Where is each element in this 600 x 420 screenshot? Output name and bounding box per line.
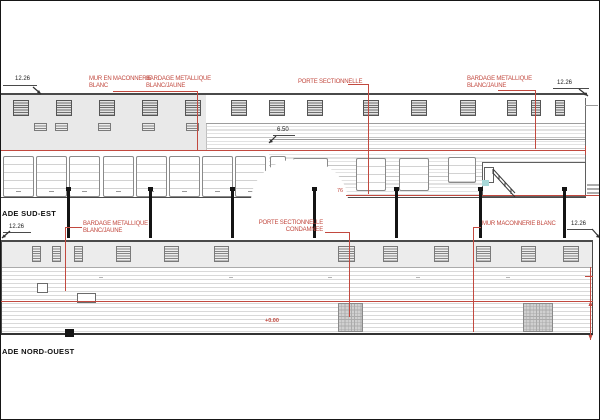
no-condemned-door	[338, 303, 363, 332]
se-vent-louver	[98, 123, 111, 131]
facade-post	[67, 187, 70, 238]
no-attic-strip	[1, 242, 593, 268]
leader-mur-no-v	[473, 227, 474, 332]
no-vent-louver	[164, 246, 179, 262]
no-joint-tick	[229, 277, 233, 278]
leader-condamnee-v	[349, 232, 350, 317]
se-window-louver	[142, 100, 158, 116]
leader-mur-se-v	[197, 91, 198, 150]
label-line: CONDAMNEE	[253, 227, 323, 234]
se-window-louver	[460, 100, 476, 116]
leader-mur-no-h	[473, 227, 481, 228]
label-bardage-se-right: BARDAGE METALLIQUE BLANC/JAUNE	[467, 76, 532, 89]
label-porte-sectionnelle: PORTE SECTIONNELLE	[298, 79, 362, 86]
facade-post	[563, 187, 566, 238]
se-annex	[585, 98, 600, 197]
label-bardage-se-left: BARDAGE METALLIQUE BLANC/JAUNE	[146, 76, 211, 89]
se-window-louver	[185, 100, 201, 116]
dim-no-height-left-line	[3, 232, 31, 233]
dim-no-height-right-line	[567, 229, 593, 230]
facade-title-sud-est: ADE SUD-EST	[2, 209, 56, 218]
leader-condamnee-h	[325, 232, 349, 233]
se-red-dim-tick	[585, 146, 586, 155]
no-black-marker	[65, 329, 74, 337]
se-window-louver	[363, 100, 379, 116]
facade-post	[395, 187, 398, 238]
se-window-louver	[307, 100, 323, 116]
se-vent-louver	[142, 123, 155, 131]
no-level-red-line	[1, 301, 593, 302]
label-mur-maconnerie-no: MUR MACONNERIE BLANC	[482, 221, 556, 228]
label-line: BLANC/JAUNE	[467, 83, 532, 90]
leader-porte-se-v	[368, 84, 369, 194]
no-vent-louver	[32, 246, 41, 262]
no-joint-tick	[328, 277, 332, 278]
no-level-text: +0.00	[265, 318, 279, 324]
label-line: PORTE SECTIONNELLE	[253, 220, 323, 227]
se-window-louver	[555, 100, 565, 116]
se-office-teal-panel	[482, 180, 489, 186]
se-door-handle	[116, 191, 121, 192]
dim-se-height-right: 12.26	[557, 80, 572, 86]
leader-bardage-no-v	[65, 227, 66, 291]
label-line: MUR MACONNERIE BLANC	[482, 221, 556, 228]
se-window-louver	[269, 100, 285, 116]
leader-bardage-se-h	[498, 90, 535, 91]
leader-bardage-no-h	[65, 227, 82, 228]
se-door-handle	[182, 191, 187, 192]
label-line: MUR EN MACONNERIE	[89, 76, 152, 83]
no-vent-louver	[338, 246, 355, 262]
facade-post-head	[562, 187, 568, 191]
facade-post-head	[230, 187, 236, 191]
se-door-handle	[215, 191, 220, 192]
dim-no-height-right: 12.26	[571, 221, 586, 227]
label-line: BLANC/JAUNE	[83, 228, 148, 235]
label-line: BLANC/JAUNE	[146, 83, 211, 90]
se-door-handle	[16, 191, 21, 192]
label-line: BARDAGE METALLIQUE	[467, 76, 532, 83]
no-right-edge	[592, 241, 593, 335]
se-window-louver	[531, 100, 541, 116]
no-small-window-1	[37, 283, 48, 293]
no-vent-louver	[74, 246, 83, 262]
no-ground-line	[1, 333, 593, 335]
se-window-louver	[411, 100, 427, 116]
se-eave-line	[269, 139, 586, 140]
se-sectional-door	[399, 158, 429, 191]
facade-title-nord-ouest: ADE NORD-OUEST	[2, 347, 75, 356]
label-line: BARDAGE METALLIQUE	[83, 221, 148, 228]
label-line: BLANC	[89, 83, 152, 90]
facade-post-head	[478, 187, 484, 191]
se-vent-louver	[34, 123, 47, 131]
label-mur-maconnerie-se: MUR EN MACONNERIE BLANC	[89, 76, 152, 89]
facade-post	[479, 187, 482, 238]
dim-se-eave: 6.50	[277, 127, 289, 133]
no-right-dim-tick	[585, 276, 593, 277]
no-vent-louver	[521, 246, 536, 262]
no-right-dim-line	[590, 267, 591, 340]
se-length-dim: 76	[337, 188, 343, 194]
se-vent-louver	[55, 123, 68, 131]
se-window-louver	[13, 100, 29, 116]
no-vent-louver	[214, 246, 229, 262]
se-sectional-door	[356, 158, 386, 191]
se-door-handle	[49, 191, 54, 192]
dim-se-height-right-line	[553, 88, 589, 89]
no-joint-tick	[506, 277, 510, 278]
se-red-dim-line	[1, 150, 586, 151]
leader-mur-se-h	[113, 91, 197, 92]
se-upper-wall	[206, 95, 586, 124]
facade-post-head	[148, 187, 154, 191]
se-ground-red-line	[346, 195, 600, 196]
dim-no-height-left: 12.26	[9, 224, 24, 230]
label-line: BARDAGE METALLIQUE	[146, 76, 211, 83]
label-porte-condamnee: PORTE SECTIONNELLE CONDAMNEE	[253, 220, 323, 233]
leader-bardage-se-v	[535, 90, 536, 149]
no-joint-tick	[99, 277, 103, 278]
label-bardage-no: BARDAGE METALLIQUE BLANC/JAUNE	[83, 221, 148, 234]
no-condemned-door	[523, 303, 553, 332]
se-cladding-upper	[206, 123, 586, 150]
no-joint-tick	[416, 277, 420, 278]
se-window-louver	[507, 100, 517, 116]
facade-post-head	[312, 187, 318, 191]
se-window-louver	[56, 100, 72, 116]
no-vent-louver	[476, 246, 491, 262]
no-left-edge	[1, 241, 2, 335]
facade-post-head	[66, 187, 72, 191]
se-office	[482, 162, 586, 197]
facade-post	[149, 187, 152, 238]
label-line: PORTE SECTIONNELLE	[298, 79, 362, 86]
facade-post-head	[394, 187, 400, 191]
dim-se-height-left-line	[3, 85, 37, 86]
se-annex-line	[585, 105, 598, 106]
elevation-drawing-sheet: 76 +0.00 MUR EN MACONNERIE BLANC	[0, 0, 600, 420]
no-vent-louver	[434, 246, 449, 262]
no-vent-louver	[563, 246, 579, 262]
se-window-louver	[99, 100, 115, 116]
no-vent-louver	[52, 246, 61, 262]
se-sectional-door	[448, 157, 476, 183]
dim-se-eave-line	[273, 135, 295, 136]
no-vent-louver	[383, 246, 398, 262]
dim-se-height-left: 12.26	[15, 76, 30, 82]
facade-post	[231, 187, 234, 238]
se-window-louver	[231, 100, 247, 116]
se-door-handle	[82, 191, 87, 192]
no-vent-louver	[116, 246, 131, 262]
